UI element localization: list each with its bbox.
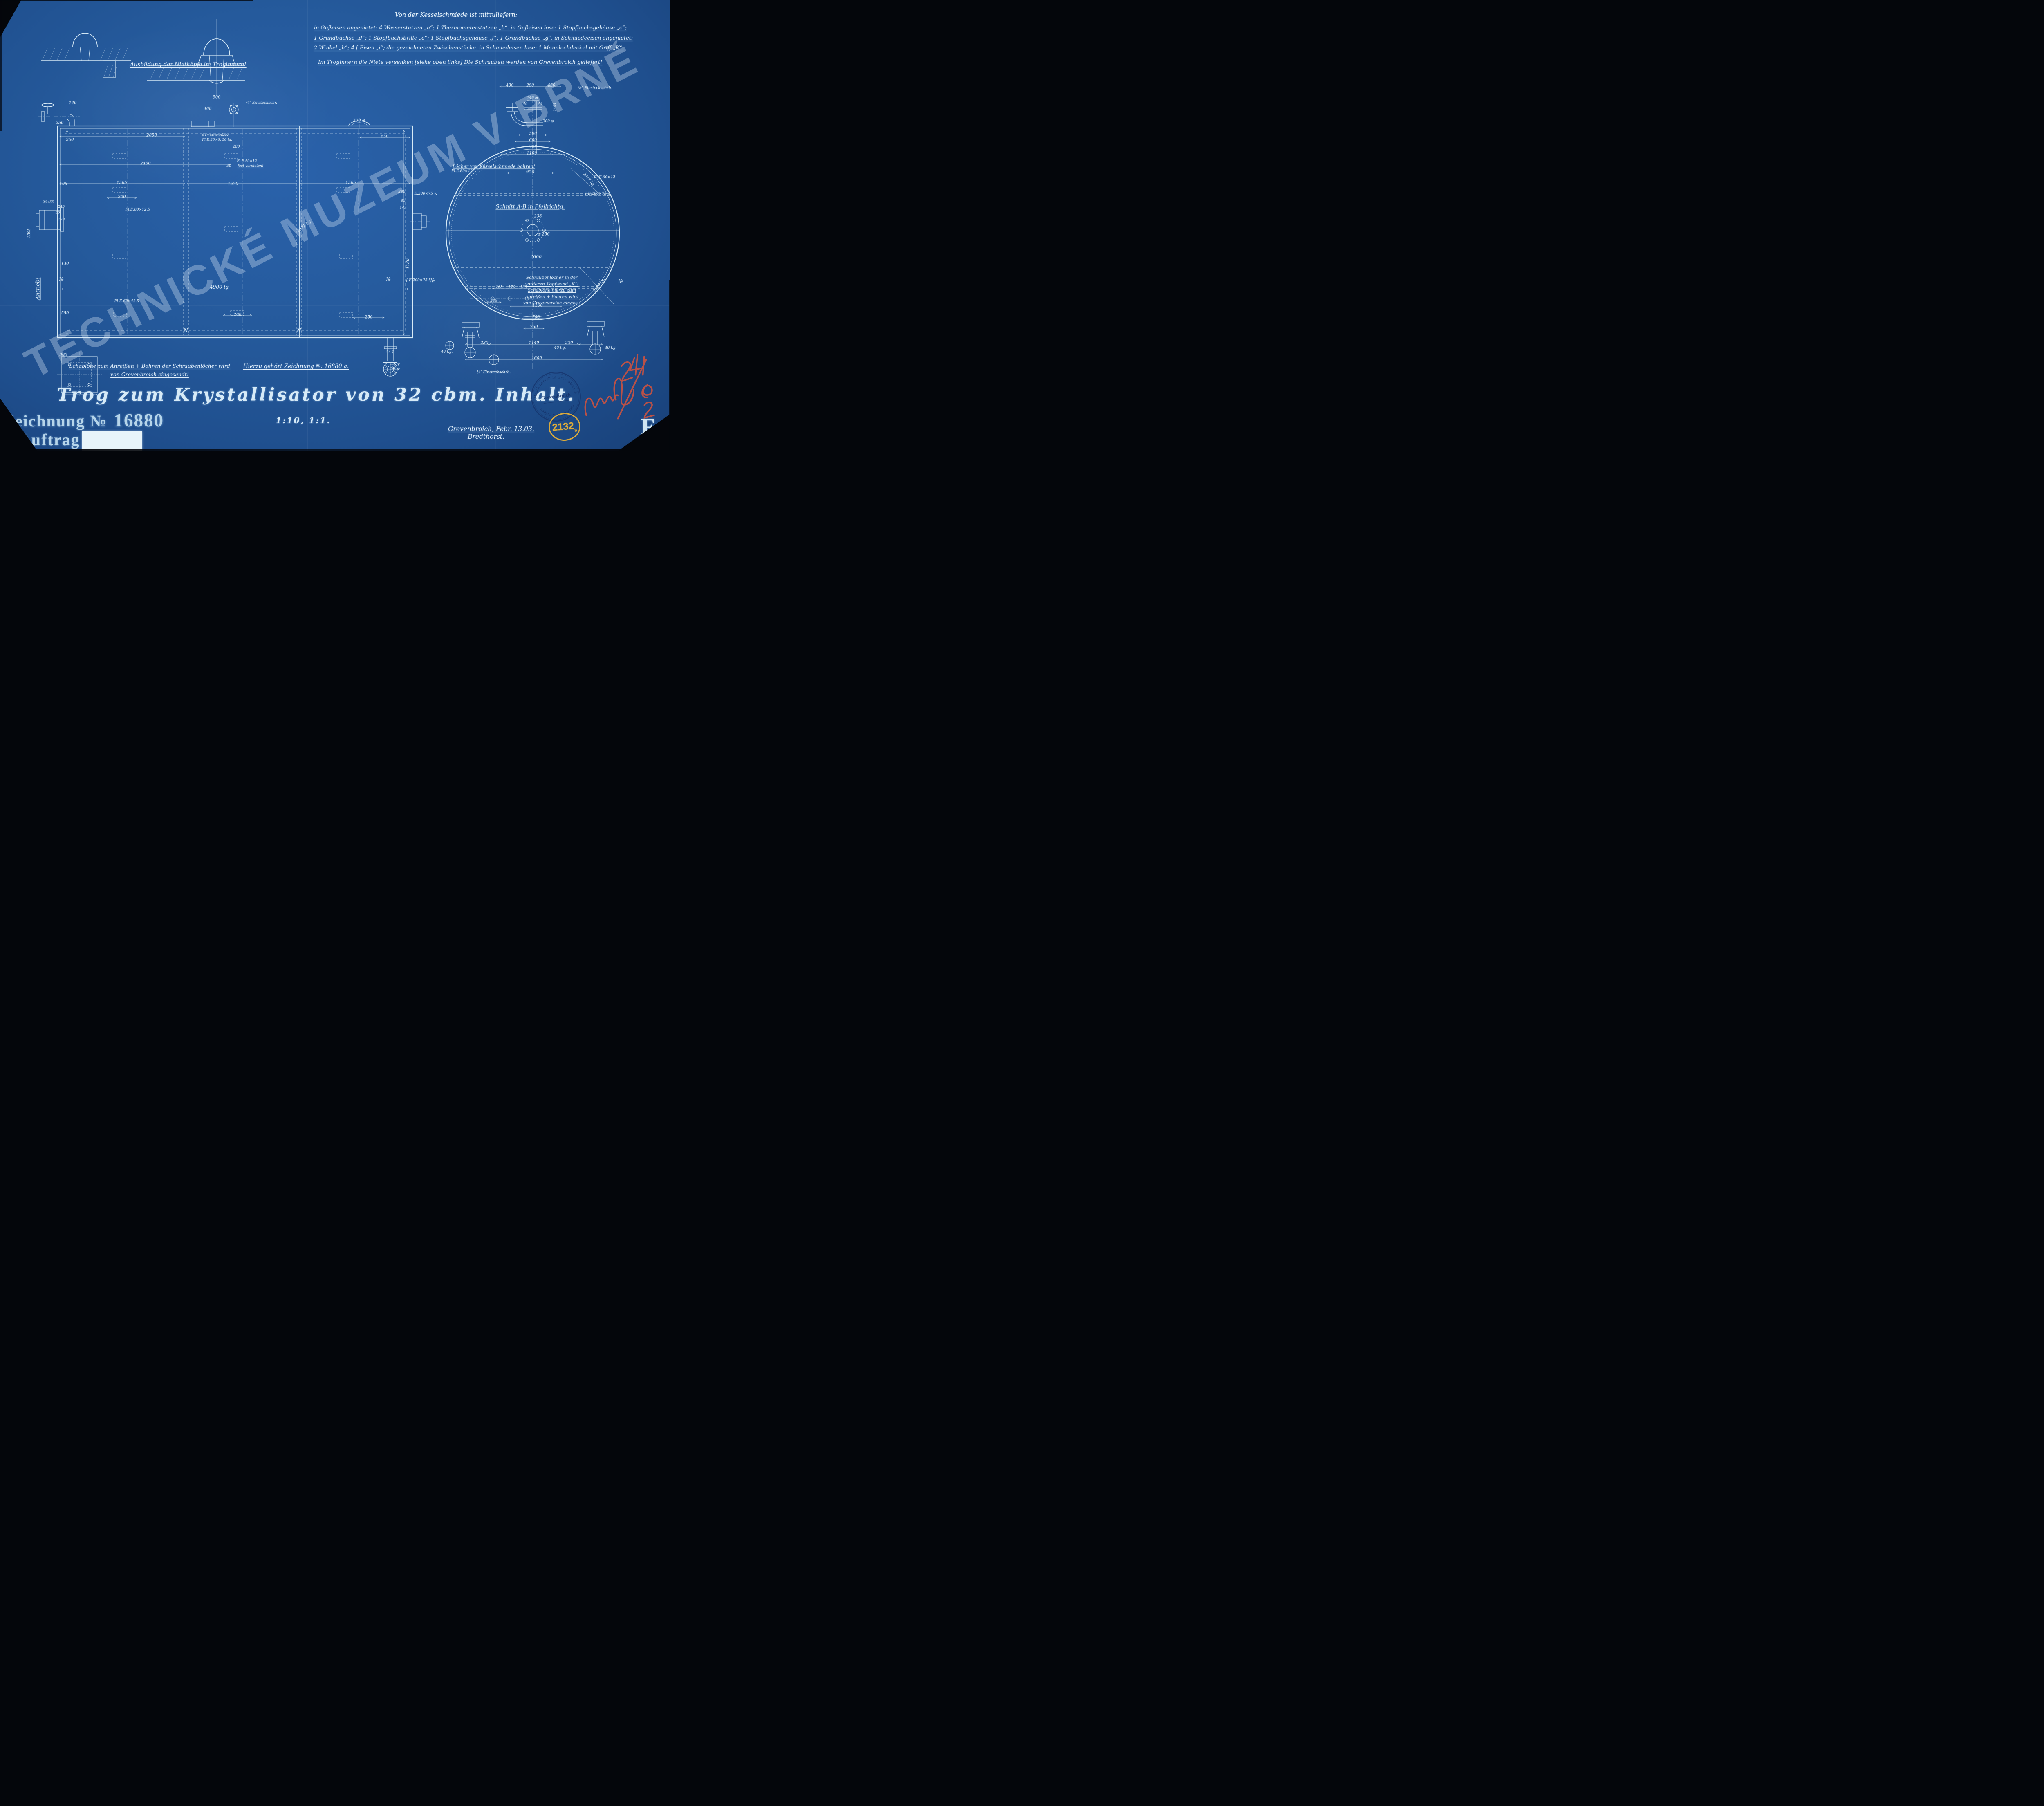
dim-label: 700	[529, 145, 537, 149]
scan-edge	[0, 0, 2, 131]
supply-note-line: 1 Grundbüchse „d“; 1 Stopfbuchsbrille „e…	[314, 34, 634, 44]
dim-label: 1130	[406, 258, 410, 269]
date-signature-block: Grevenbroich, Febr. 13.03. Bredthorst.	[448, 425, 534, 440]
kopfwand-note-line: Schraubenlöcher in der	[516, 275, 588, 281]
dim-label: 1100	[527, 151, 537, 156]
dim-label: 300	[59, 353, 67, 357]
dim-label: 200	[233, 145, 240, 149]
dim-label: [ E.200×75 i.	[585, 192, 610, 196]
copy-number-suffix: s	[574, 426, 578, 433]
dim-label: 170	[58, 218, 65, 222]
stamp-center-text: Grevenbroich	[541, 392, 571, 401]
dim-label: 500	[529, 132, 537, 136]
supply-note-lines: in Gußeisen angenietet: 4 Wasserstutzen …	[314, 23, 634, 54]
dim-label: 500	[213, 95, 220, 100]
dim-label: 260	[66, 138, 74, 142]
dim-label: 2050	[146, 133, 157, 138]
dim-label: 45	[401, 199, 405, 203]
dim-label: 250	[530, 325, 538, 330]
dim-label: 240	[58, 205, 65, 209]
dim-label: 200	[118, 195, 126, 200]
dim-label: Antrieb!	[35, 278, 41, 300]
dim-label: [ E.200×75 v.	[412, 192, 437, 196]
supply-note-line: in Gußeisen angenietet: 4 Wasserstutzen …	[314, 23, 634, 34]
dim-label: Schnitt A-B in Pfeilrichtg.	[495, 204, 565, 210]
template-note-line: Schablone zum Anreißen + Bohren der Schr…	[69, 361, 230, 370]
scan-edge	[0, 0, 253, 1]
rivet-caption: Ausbildung der Nietköpfe im Troginnern!	[130, 61, 240, 68]
dim-label: 1140	[529, 341, 539, 345]
dim-label: 26+55	[43, 200, 54, 204]
dim-label: 2600	[530, 254, 542, 260]
dim-label: 2971 l.g.	[296, 219, 313, 233]
drawing-title: Trog zum Krystallisator von 32 cbm. Inha…	[57, 385, 576, 405]
dim-label: Fl.E.50×12	[237, 159, 257, 163]
zeichnung-row: Zeichnung №16880	[3, 410, 164, 431]
dim-label: 40 l.g.	[554, 346, 566, 350]
dim-label: 40	[538, 102, 542, 106]
dim-label: 600	[529, 138, 537, 143]
dim-label: 1565	[117, 181, 127, 185]
dim-label: Fl.E.60×12.5	[126, 208, 150, 212]
dim-label: 230	[480, 341, 488, 345]
dim-label: N.	[184, 328, 189, 333]
dim-label: fest vernieten!	[238, 164, 263, 168]
dim-label: 650	[381, 135, 388, 139]
dim-label: 2450	[140, 162, 150, 166]
dim-label: Fl.E.60×12	[451, 169, 473, 173]
dim-label: 240	[398, 190, 405, 194]
dim-label: ½″ Einsteckschrb.	[578, 86, 612, 90]
dim-label: 165	[495, 285, 502, 289]
dim-label: 140 φ	[527, 96, 538, 100]
dim-label: №	[59, 276, 63, 282]
belongs-note: Hierzu gehört Zeichnung №: 16880 a.	[243, 363, 349, 370]
dim-label: φ 256	[538, 232, 549, 237]
zeichnung-number: 16880	[114, 410, 164, 431]
dim-label: 235	[490, 299, 497, 303]
dim-label: Fl.E.60×42.5	[114, 299, 139, 303]
dim-label: 950	[526, 169, 535, 175]
red-crayon-annotation	[576, 350, 670, 429]
supply-note-footnote: Im Troginnern die Niete versenken [siehe…	[318, 59, 634, 65]
dim-label: [ E.200×75 i.	[406, 278, 431, 283]
dim-label: 300 φ	[353, 119, 365, 123]
dim-label: 2917 l.g.	[582, 173, 596, 188]
dim-label: 250	[56, 121, 63, 126]
fold-crease	[0, 305, 670, 306]
dim-label: 400	[204, 107, 211, 111]
dim-label: 2900 l.g.	[593, 277, 606, 293]
scan-edge	[0, 449, 670, 451]
dim-label: 550	[61, 311, 69, 316]
copy-number: 2132	[552, 420, 575, 434]
dim-label: №	[618, 278, 623, 284]
dim-label: 90	[56, 211, 60, 215]
dim-label: 106	[59, 182, 67, 186]
kopfwand-note: Schraubenlöcher in dervorderen Kopfwand …	[516, 275, 588, 307]
dim-label: 30	[226, 164, 231, 168]
scan-edge	[669, 280, 670, 451]
dim-label: Fl.E.30×6, 50 lg.	[202, 138, 232, 142]
dim-label: 1565	[345, 181, 356, 185]
dim-label: 110 φ	[390, 362, 399, 366]
signature: Bredthorst.	[448, 433, 534, 440]
dim-label: 300 φ	[543, 119, 554, 123]
dim-label: 130	[61, 262, 69, 266]
dim-label: 140	[69, 101, 76, 105]
dim-label: 430	[547, 83, 555, 88]
dim-label: 1405	[553, 103, 557, 111]
fold-crease	[495, 0, 496, 451]
blueprint-sheet: 140250500400¾″ Einsteckschr.2050650300 φ…	[0, 0, 670, 451]
supply-note-header: Von der Kesselschmiede ist mitzuliefern:	[395, 12, 517, 20]
dim-label: 230	[565, 341, 573, 345]
dim-label: 170	[508, 285, 515, 289]
dim-label: 40	[523, 102, 527, 106]
dim-label: 280	[526, 83, 534, 88]
place-date: Grevenbroich, Febr. 13.03.	[448, 425, 534, 433]
fold-crease	[307, 0, 308, 451]
dim-label: 700	[532, 315, 540, 320]
dim-label: N.	[297, 328, 303, 333]
kopfwand-note-line: Schablone hierzu zum	[516, 287, 588, 294]
dim-label: ½″ Einsteckschrb.	[477, 370, 511, 375]
supply-note-line: 2 Winkel „h“; 4 [ Eisen „i“; die gezeich…	[314, 43, 634, 54]
dim-label: №	[386, 276, 390, 282]
dim-label: 4900 lg	[210, 284, 229, 290]
dim-label: 40 l.g.	[605, 346, 617, 350]
dim-label: 250	[365, 315, 372, 320]
dim-label: 238	[534, 214, 542, 219]
dim-label: 12 φ	[386, 350, 394, 354]
dim-label: 140 φ	[390, 367, 399, 370]
dim-label: 4 Centrirstücke	[202, 133, 229, 137]
dim-label: Fl.E.60×12	[594, 175, 615, 179]
dim-label: 3305	[27, 229, 31, 238]
dim-label: 200	[233, 313, 241, 317]
dim-label: ¾″ Einsteckschr.	[246, 101, 277, 105]
template-note-line: von Grevenbroich eingesandt!	[69, 370, 230, 379]
scale-note: 1:10, 1:1.	[276, 415, 331, 425]
kopfwand-note-line: vorderen Kopfwand „K“!	[516, 281, 588, 288]
dim-label: Löcher von Kesselschmiede bohren!	[453, 164, 535, 169]
dim-label: №	[430, 278, 435, 283]
template-note: Schablone zum Anreißen + Bohren der Schr…	[69, 361, 230, 379]
dim-label: 145	[399, 206, 406, 210]
kopfwand-note-line: Anreißen + Bohren wird	[516, 294, 588, 301]
dim-label: 40 l.g.	[441, 350, 453, 354]
dim-label: 430	[506, 83, 513, 88]
supply-note-block: Von der Kesselschmiede ist mitzuliefern:…	[314, 11, 634, 65]
dim-label: 1570	[228, 182, 238, 186]
dim-label: 1600	[531, 356, 542, 361]
